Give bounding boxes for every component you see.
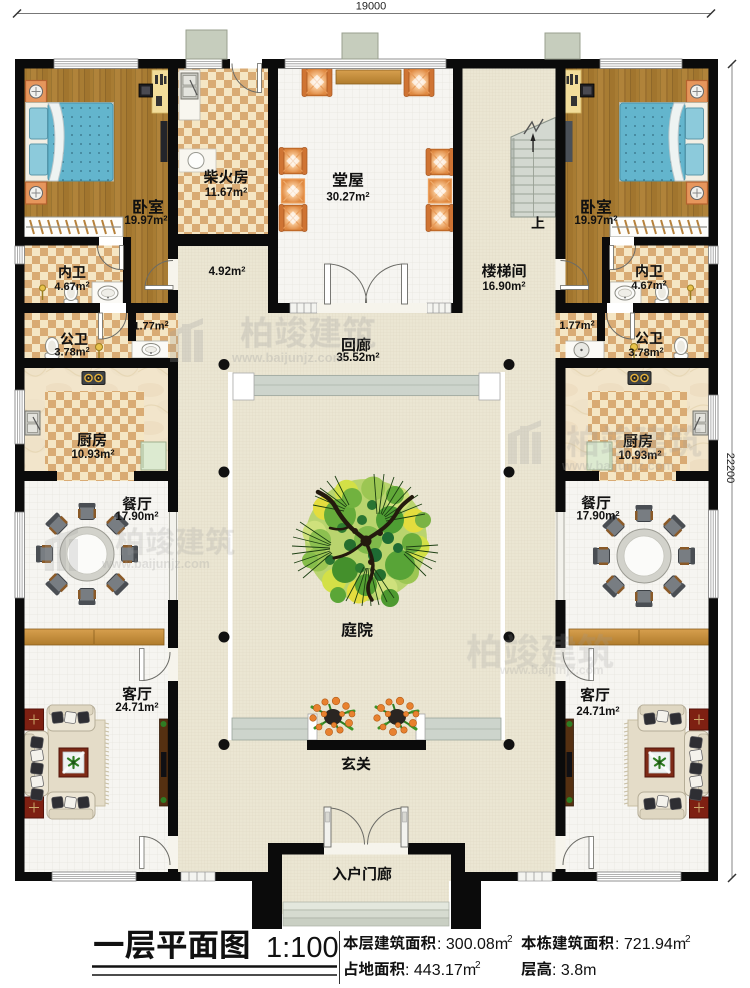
svg-text:www.baijunjz.com: www.baijunjz.com <box>101 557 210 571</box>
svg-text:24.71m2: 24.71m2 <box>576 705 619 718</box>
svg-text:: 300.08m: : 300.08m <box>437 936 508 953</box>
svg-text:19.97m2: 19.97m2 <box>574 214 617 227</box>
svg-text:3.78m2: 3.78m2 <box>54 345 89 358</box>
svg-text:: 721.94m: : 721.94m <box>615 936 686 953</box>
svg-text:3.78m2: 3.78m2 <box>628 346 663 359</box>
svg-text:24.71m2: 24.71m2 <box>115 701 158 714</box>
svg-text:2: 2 <box>685 934 691 945</box>
svg-text:17.90m2: 17.90m2 <box>576 509 619 522</box>
svg-text:19000: 19000 <box>356 1 387 13</box>
svg-text:2: 2 <box>475 960 481 971</box>
svg-text:www.baijunjz.com: www.baijunjz.com <box>561 458 674 473</box>
svg-text:1.77m2: 1.77m2 <box>133 319 168 332</box>
svg-text:22200: 22200 <box>724 453 736 484</box>
svg-text:2: 2 <box>507 934 513 945</box>
svg-text:www.baijunjz.com: www.baijunjz.com <box>499 663 604 677</box>
svg-text:4.67m2: 4.67m2 <box>54 280 89 293</box>
svg-text:1:100: 1:100 <box>266 932 339 964</box>
svg-text:4.92m2: 4.92m2 <box>209 265 246 278</box>
svg-text:30.27m2: 30.27m2 <box>326 190 369 203</box>
svg-text:17.90m2: 17.90m2 <box>115 510 158 523</box>
svg-text:11.67m2: 11.67m2 <box>205 186 248 199</box>
svg-text:: 443.17m: : 443.17m <box>405 962 476 979</box>
svg-text:1.77m2: 1.77m2 <box>559 319 594 332</box>
svg-text:4.67m2: 4.67m2 <box>631 279 666 292</box>
svg-text:19.97m2: 19.97m2 <box>124 214 167 227</box>
svg-text:10.93m2: 10.93m2 <box>71 448 114 461</box>
svg-text:www.baijunjz.com: www.baijunjz.com <box>231 350 344 365</box>
svg-text:: 3.8m: : 3.8m <box>552 962 596 979</box>
svg-text:16.90m2: 16.90m2 <box>482 280 525 293</box>
